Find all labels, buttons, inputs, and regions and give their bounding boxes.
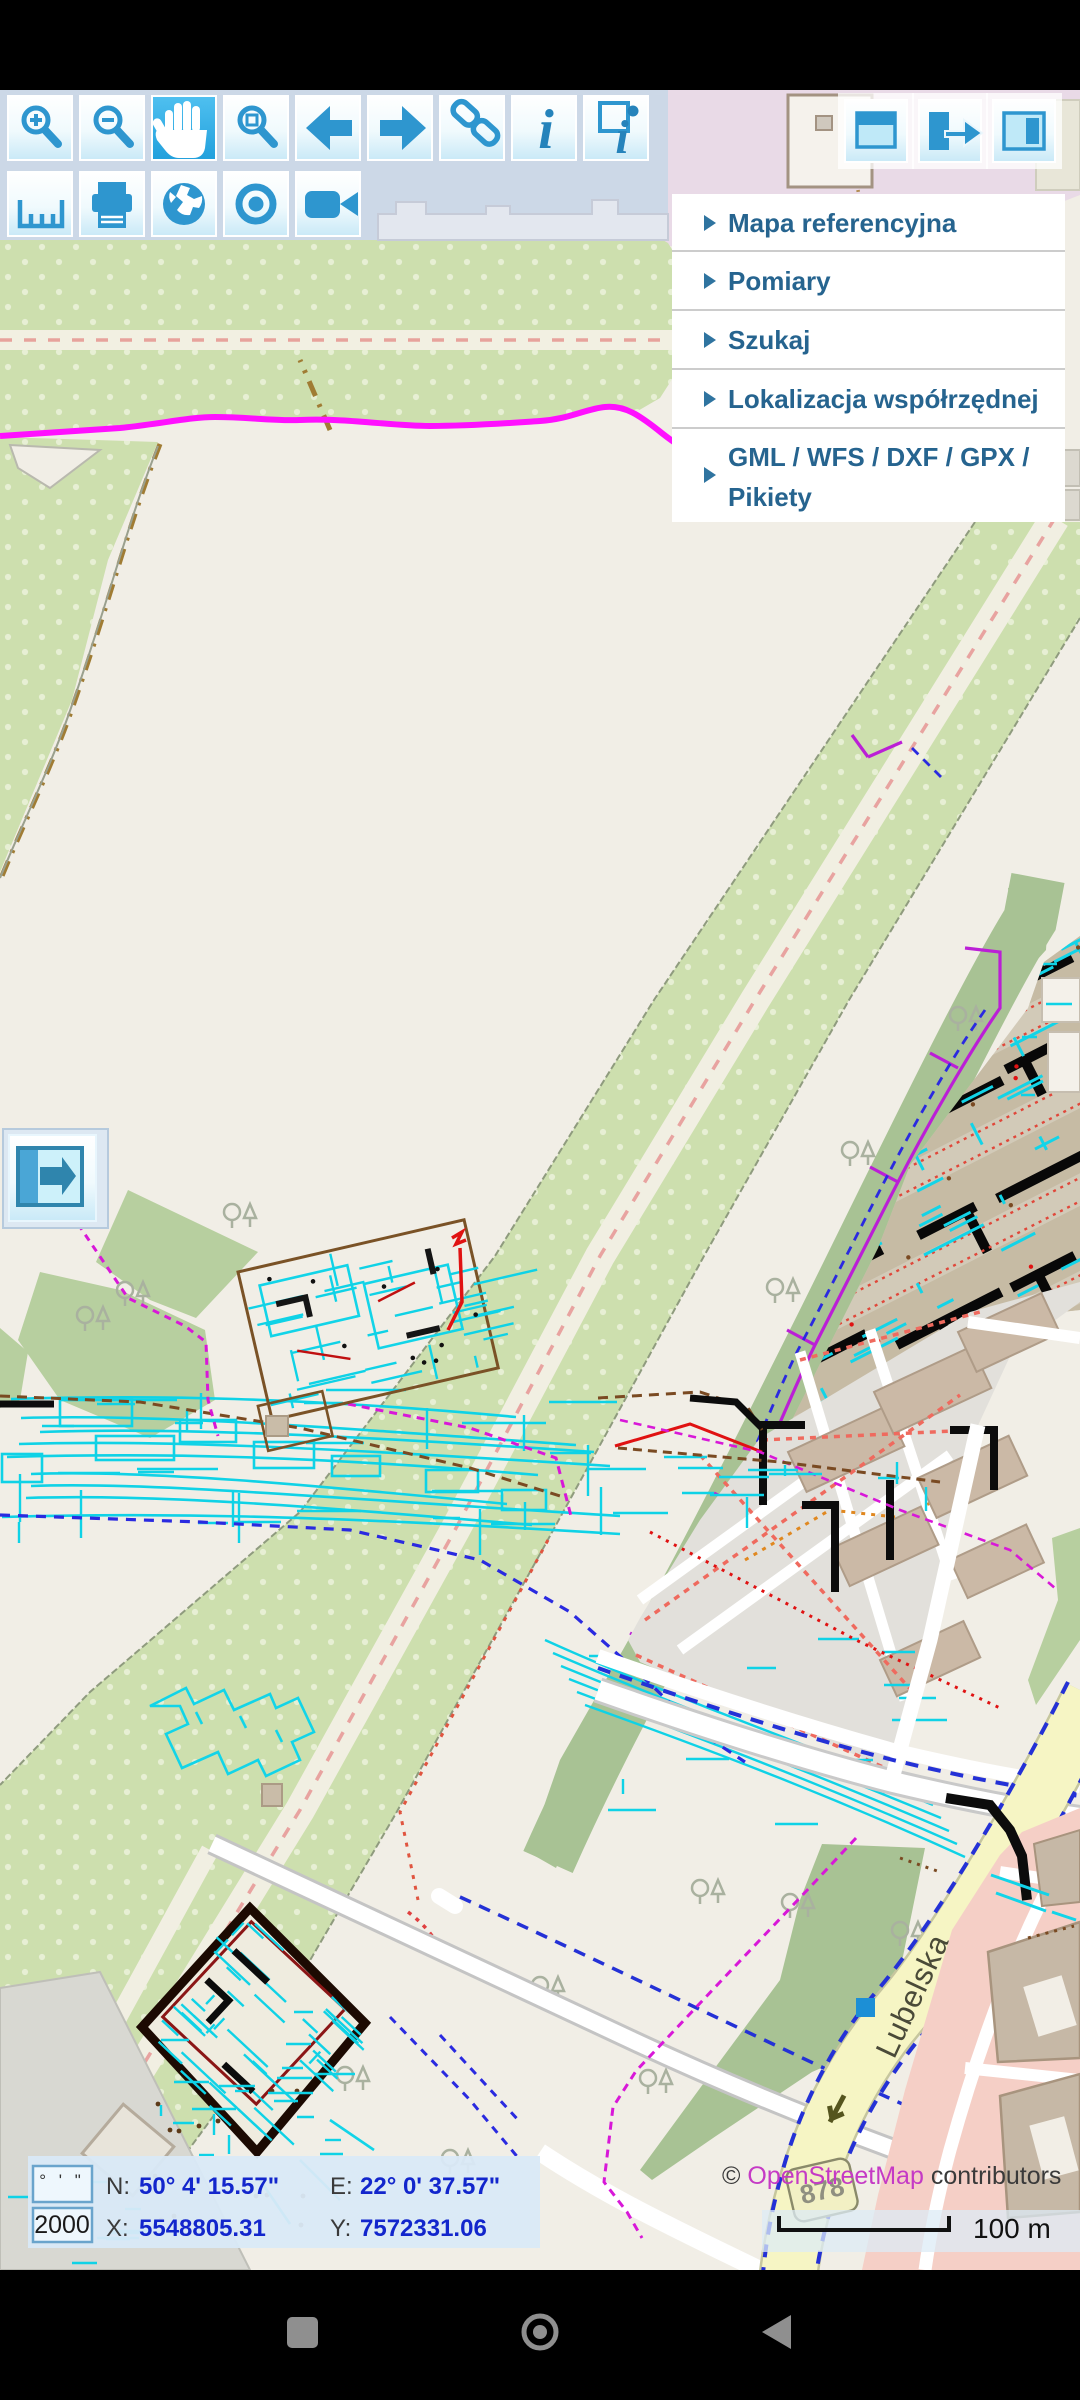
svg-text:Pikiety: Pikiety — [728, 482, 812, 512]
svg-text:5548805.31: 5548805.31 — [139, 2215, 266, 2242]
svg-text:Lokalizacja współrzędnej: Lokalizacja współrzędnej — [728, 384, 1039, 414]
svg-text:GML / WFS / DXF / GPX /: GML / WFS / DXF / GPX / — [728, 442, 1029, 472]
svg-text:X:: X: — [106, 2215, 129, 2242]
svg-text:i: i — [615, 111, 629, 164]
svg-text:Mapa referencyjna: Mapa referencyjna — [728, 208, 957, 238]
svg-text:7572331.06: 7572331.06 — [360, 2215, 487, 2242]
svg-text:Y:: Y: — [330, 2215, 351, 2242]
svg-text:50° 4' 15.57": 50° 4' 15.57" — [139, 2173, 279, 2200]
svg-text:100 m: 100 m — [973, 2213, 1051, 2244]
svg-text:Szukaj: Szukaj — [728, 325, 810, 355]
svg-text:i: i — [538, 99, 554, 161]
svg-text:N:: N: — [106, 2173, 130, 2200]
svg-text:Pomiary: Pomiary — [728, 266, 831, 296]
svg-text:° ' ": ° ' " — [39, 2171, 85, 2190]
svg-text:2000: 2000 — [34, 2211, 90, 2239]
svg-text:E:: E: — [330, 2173, 353, 2200]
svg-text:© OpenStreetMap contributors: © OpenStreetMap contributors — [722, 2162, 1061, 2190]
svg-text:22° 0' 37.57": 22° 0' 37.57" — [360, 2173, 500, 2200]
